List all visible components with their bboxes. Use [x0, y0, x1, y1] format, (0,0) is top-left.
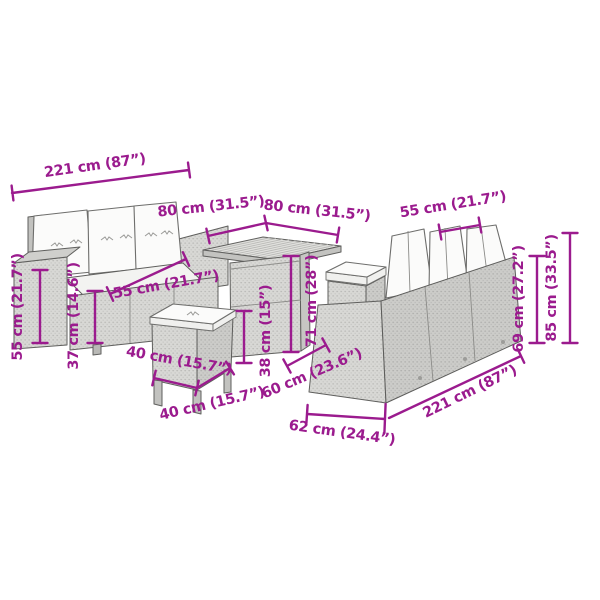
dim-backrest-height-label: 69 cm (27.2”)	[511, 245, 527, 352]
right-sofa-rivet	[463, 357, 467, 361]
dim-back-cushion-width-label: 55 cm (21.7”)	[399, 189, 508, 222]
dim-table-height-label: 71 cm (28”)	[304, 255, 320, 348]
dim-total-height-line	[563, 233, 578, 343]
dim-total-height: 85 cm (33.5”)	[544, 233, 578, 343]
dim-sofa-depth-label: 62 cm (24.4”)	[288, 418, 397, 449]
dim-stool-height-label: 38 cm (15”)	[258, 285, 274, 378]
stool-left-leg	[154, 380, 162, 406]
diagram-canvas: 221 cm (87”) 80 cm (31.5”) 80 cm (31.5”)…	[0, 0, 600, 600]
dim-stool-depth-label: 40 cm (15.7”)	[158, 384, 266, 424]
left-sofa-leg	[93, 344, 101, 355]
dim-backrest-height-line	[530, 256, 545, 343]
dim-table-top-depth-label: 80 cm (31.5”)	[263, 197, 371, 224]
right-sofa-rivet	[418, 376, 422, 380]
left-sofa-back-cushion-2	[88, 206, 140, 274]
dim-backrest-height: 69 cm (27.2”)	[511, 245, 545, 352]
dim-seat-height-label: 37 cm (14.6”)	[66, 262, 82, 369]
dim-table-top-depth: 80 cm (31.5”)	[263, 197, 371, 242]
dim-table-top-width-label: 80 cm (31.5”)	[157, 193, 265, 220]
dim-sofa-depth: 62 cm (24.4”)	[288, 404, 397, 448]
dim-sofa-left-width: 221 cm (87”)	[12, 151, 190, 200]
dim-armrest-height-label: 55 cm (21.7”)	[10, 253, 26, 360]
dimension-diagram: 221 cm (87”) 80 cm (31.5”) 80 cm (31.5”)…	[0, 0, 600, 600]
dim-total-height-label: 85 cm (33.5”)	[544, 234, 560, 341]
right-sofa-rivet	[501, 340, 505, 344]
